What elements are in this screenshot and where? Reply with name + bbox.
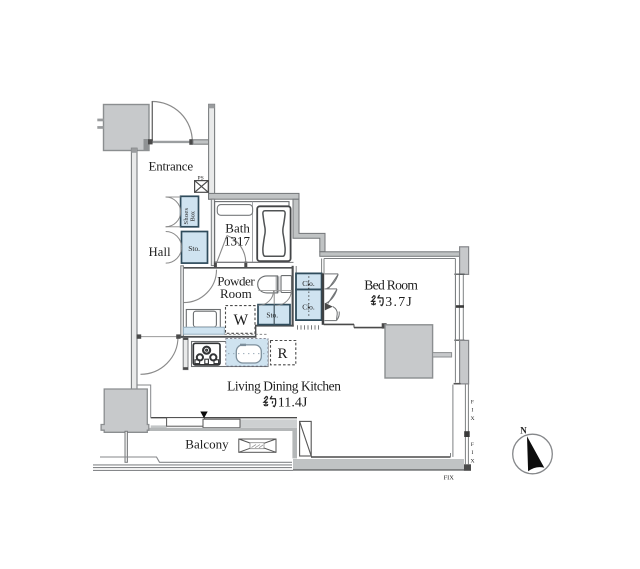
svg-text:Clo.: Clo. [302, 303, 315, 312]
svg-text:Hall: Hall [149, 245, 172, 259]
svg-text:I: I [472, 408, 474, 414]
svg-text:N: N [520, 425, 527, 435]
svg-text:PS: PS [198, 176, 204, 182]
svg-text:1317: 1317 [224, 234, 251, 249]
svg-text:Clo.: Clo. [302, 279, 315, 288]
svg-text:FIX: FIX [444, 475, 455, 482]
svg-text:I: I [472, 450, 474, 456]
svg-text:F: F [471, 400, 474, 406]
svg-text:F: F [471, 442, 474, 448]
svg-text:Bed Room: Bed Room [364, 278, 418, 293]
svg-text:Entrance: Entrance [149, 159, 194, 174]
svg-text:Balcony: Balcony [185, 437, 229, 452]
svg-text:Room: Room [220, 286, 252, 301]
svg-text:X: X [471, 416, 475, 422]
svg-text:R: R [278, 346, 288, 362]
svg-text:X: X [471, 459, 475, 465]
svg-text:11.4J: 11.4J [278, 396, 308, 411]
svg-text:3.7J: 3.7J [385, 294, 412, 309]
svg-text:W: W [234, 312, 249, 329]
svg-text:Box: Box [190, 210, 197, 221]
svg-text:Living Dining Kitchen: Living Dining Kitchen [227, 378, 341, 393]
svg-text:Sto.: Sto. [266, 311, 278, 320]
svg-text:Sto.: Sto. [188, 244, 200, 253]
